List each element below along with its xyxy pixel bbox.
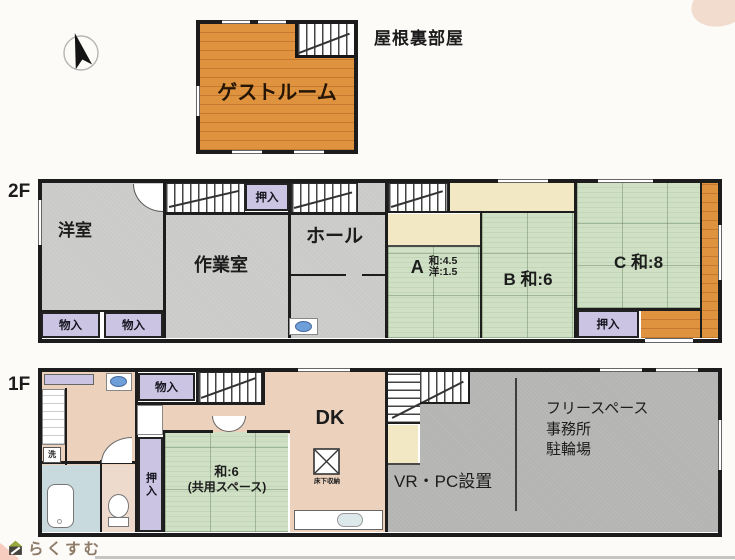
floor1-label: 1F — [8, 374, 30, 396]
floor2-window — [718, 225, 722, 280]
free-space-floor — [470, 372, 718, 532]
bathtub-drain — [57, 519, 62, 524]
attic-window — [232, 150, 262, 154]
closet-oshiire-top: 押入 — [245, 183, 289, 211]
floor2-window — [645, 338, 693, 343]
attic-window — [294, 150, 324, 154]
floor1-window — [718, 420, 722, 470]
floor1-window — [656, 368, 698, 372]
room-a-wood-area — [388, 214, 480, 246]
sink-icon — [295, 321, 312, 332]
floor2-window — [598, 179, 653, 183]
floor2-label: 2F — [8, 181, 30, 203]
wall — [480, 212, 482, 338]
wall — [163, 430, 213, 433]
dk-floor — [265, 372, 385, 406]
hall-label: ホール — [306, 221, 363, 248]
work-room-label: 作業室 — [194, 251, 248, 277]
western-room-label: 洋室 — [58, 216, 92, 241]
storage-monoire-right: 物入 — [104, 312, 163, 338]
washing-machine-label: 洗 — [48, 450, 56, 459]
room-c-label: C 和:8 — [577, 248, 700, 273]
underfloor-storage-label: 床下収納 — [302, 475, 352, 485]
room-b-label: B 和:6 — [483, 265, 573, 290]
floor1-window — [600, 368, 642, 372]
wall — [388, 211, 574, 213]
wall — [262, 372, 265, 403]
shoe-cabinet — [44, 374, 94, 385]
floor2-window — [38, 200, 42, 245]
wall — [385, 183, 388, 338]
closet-front — [137, 405, 163, 435]
zone-divider-line — [515, 378, 517, 511]
house-logo-icon — [7, 539, 24, 556]
wall — [247, 430, 290, 433]
toilet-icon — [108, 494, 129, 518]
free-space-label: フリースペース — [546, 397, 648, 418]
wall — [362, 274, 385, 276]
closet-oshiire-bottom: 押入 — [577, 310, 639, 338]
wall — [386, 422, 420, 424]
wall — [196, 372, 198, 403]
page-curl-decoration — [687, 0, 735, 33]
photo-edge-shadow — [95, 556, 735, 559]
room-c-tatami — [577, 183, 700, 308]
hall-floor — [358, 183, 385, 214]
floorplan-page: ゲストルーム 屋根裏部屋 2F 押入 物入 物入 押入 洋室 作業室 ホール — [0, 0, 735, 560]
wall — [388, 463, 420, 465]
storage-monoire-left: 物入 — [41, 312, 100, 338]
office-label: 事務所 — [546, 418, 591, 439]
underfloor-storage-icon — [313, 448, 340, 475]
bicycle-parking-label: 駐輪場 — [546, 438, 591, 459]
storage-monoire: 物入 — [138, 373, 195, 401]
vr-pc-label: VR・PC設置 — [394, 467, 492, 492]
shared-tatami-note: (共用スペース) — [157, 478, 297, 495]
kitchen-sink-icon — [337, 513, 363, 527]
wall — [163, 183, 166, 338]
sink-icon — [110, 376, 127, 387]
attic-floor-title: 屋根裏部屋 — [374, 24, 464, 49]
attic-window — [258, 20, 286, 24]
floor2-window — [498, 179, 548, 183]
wall — [700, 183, 702, 338]
toilet-tank — [108, 517, 129, 527]
attic-window — [222, 20, 250, 24]
wall — [448, 183, 450, 212]
wall — [468, 372, 470, 404]
corridor-wood-strip — [450, 183, 574, 212]
room-a-yo-size: 洋:1.5 — [429, 267, 458, 278]
room-a-letter: A — [411, 257, 424, 278]
dk-label: DK — [305, 407, 355, 430]
balcony-strip — [702, 183, 718, 338]
wall — [291, 274, 346, 276]
wall — [163, 212, 385, 215]
floor1-window — [298, 368, 350, 372]
wall — [65, 388, 67, 465]
room-a-label: A 和:4.5 洋:1.5 — [390, 256, 478, 278]
wash-counter — [42, 389, 65, 445]
wall — [388, 245, 480, 247]
wall — [420, 402, 470, 404]
landing-wood-square — [388, 425, 418, 463]
wall — [100, 460, 102, 532]
brand-watermark: らくすむ — [28, 537, 102, 559]
guest-room-label: ゲストルーム — [198, 76, 356, 105]
room-c-wood-corner — [641, 310, 700, 338]
washing-machine: 洗 — [43, 447, 61, 463]
north-arrow-icon — [58, 28, 104, 74]
wall — [385, 372, 388, 532]
